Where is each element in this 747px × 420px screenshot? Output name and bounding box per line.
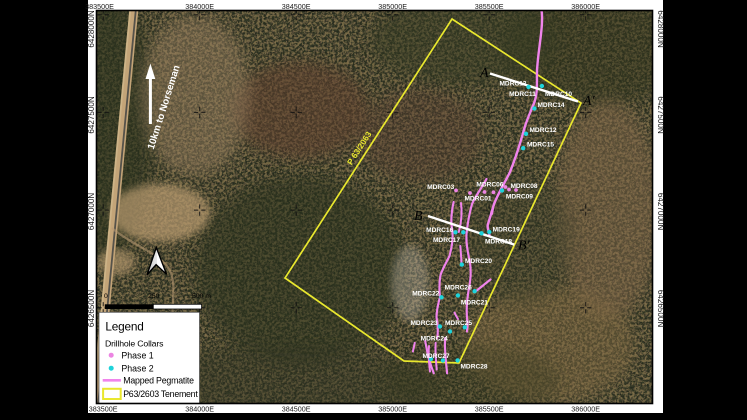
svg-text:MDRC16: MDRC16 [426,227,453,234]
svg-text:6426500N: 6426500N [87,290,96,328]
svg-text:386000E: 386000E [571,405,600,414]
svg-text:MDRC24: MDRC24 [421,335,448,342]
svg-text:6428000N: 6428000N [656,10,665,48]
svg-text:MDRC01: MDRC01 [464,195,491,202]
svg-text:MDRC17: MDRC17 [433,237,460,244]
svg-text:385000E: 385000E [378,2,407,11]
svg-text:383500E: 383500E [89,405,118,414]
svg-text:6427000N: 6427000N [87,193,96,231]
svg-text:0: 0 [104,293,108,300]
svg-text:MDRC21: MDRC21 [461,300,488,307]
svg-text:MDRC20: MDRC20 [465,258,492,265]
svg-text:MDRC19: MDRC19 [493,227,520,234]
svg-text:6428000N: 6428000N [87,10,96,48]
svg-text:383500E: 383500E [85,2,114,11]
svg-text:250: 250 [148,293,160,300]
svg-text:Legend: Legend [105,320,143,334]
svg-text:MDRC26: MDRC26 [445,285,472,292]
svg-text:MDRC18: MDRC18 [485,238,512,245]
svg-text:MDRC28: MDRC28 [460,364,487,371]
svg-text:MDRC10: MDRC10 [545,91,572,98]
svg-text:6427500N: 6427500N [87,96,96,134]
svg-text:Mapped Pegmatite: Mapped Pegmatite [123,376,194,386]
svg-text:MDRC11: MDRC11 [509,91,536,98]
svg-text:6427500N: 6427500N [656,96,665,134]
svg-text:P63/2603 Tenement: P63/2603 Tenement [123,389,198,399]
svg-text:MDRC23: MDRC23 [410,320,437,327]
svg-text:MDRC08: MDRC08 [510,183,537,190]
svg-text:MDRC03: MDRC03 [427,184,454,191]
svg-text:6427000N: 6427000N [656,193,665,231]
svg-text:384000E: 384000E [185,2,214,11]
svg-text:MDRC27: MDRC27 [422,353,449,360]
svg-text:B′: B′ [518,239,531,254]
svg-text:6426500N: 6426500N [656,290,665,328]
svg-text:500 m: 500 m [192,293,211,300]
svg-text:MDRC06: MDRC06 [476,181,503,188]
svg-text:Drillhole Collars: Drillhole Collars [105,339,164,349]
svg-text:385000E: 385000E [378,405,407,414]
svg-text:386000E: 386000E [571,2,600,11]
svg-text:385500E: 385500E [475,405,504,414]
svg-text:A: A [479,66,489,81]
svg-text:Phase 2: Phase 2 [121,363,153,373]
svg-text:A′: A′ [582,94,596,109]
svg-text:384500E: 384500E [282,2,311,11]
svg-text:MDRC15: MDRC15 [527,141,554,148]
svg-text:384000E: 384000E [185,405,214,414]
svg-text:Phase 1: Phase 1 [121,350,153,360]
svg-text:385500E: 385500E [475,2,504,11]
svg-text:MDRC13: MDRC13 [499,81,526,88]
svg-text:MDRC22: MDRC22 [412,290,439,297]
svg-text:MDRC14: MDRC14 [537,102,564,109]
svg-text:MDRC25: MDRC25 [445,320,472,327]
svg-text:B: B [414,209,423,224]
svg-text:384500E: 384500E [282,405,311,414]
svg-text:MDRC09: MDRC09 [506,194,533,201]
svg-text:MDRC12: MDRC12 [529,127,556,134]
